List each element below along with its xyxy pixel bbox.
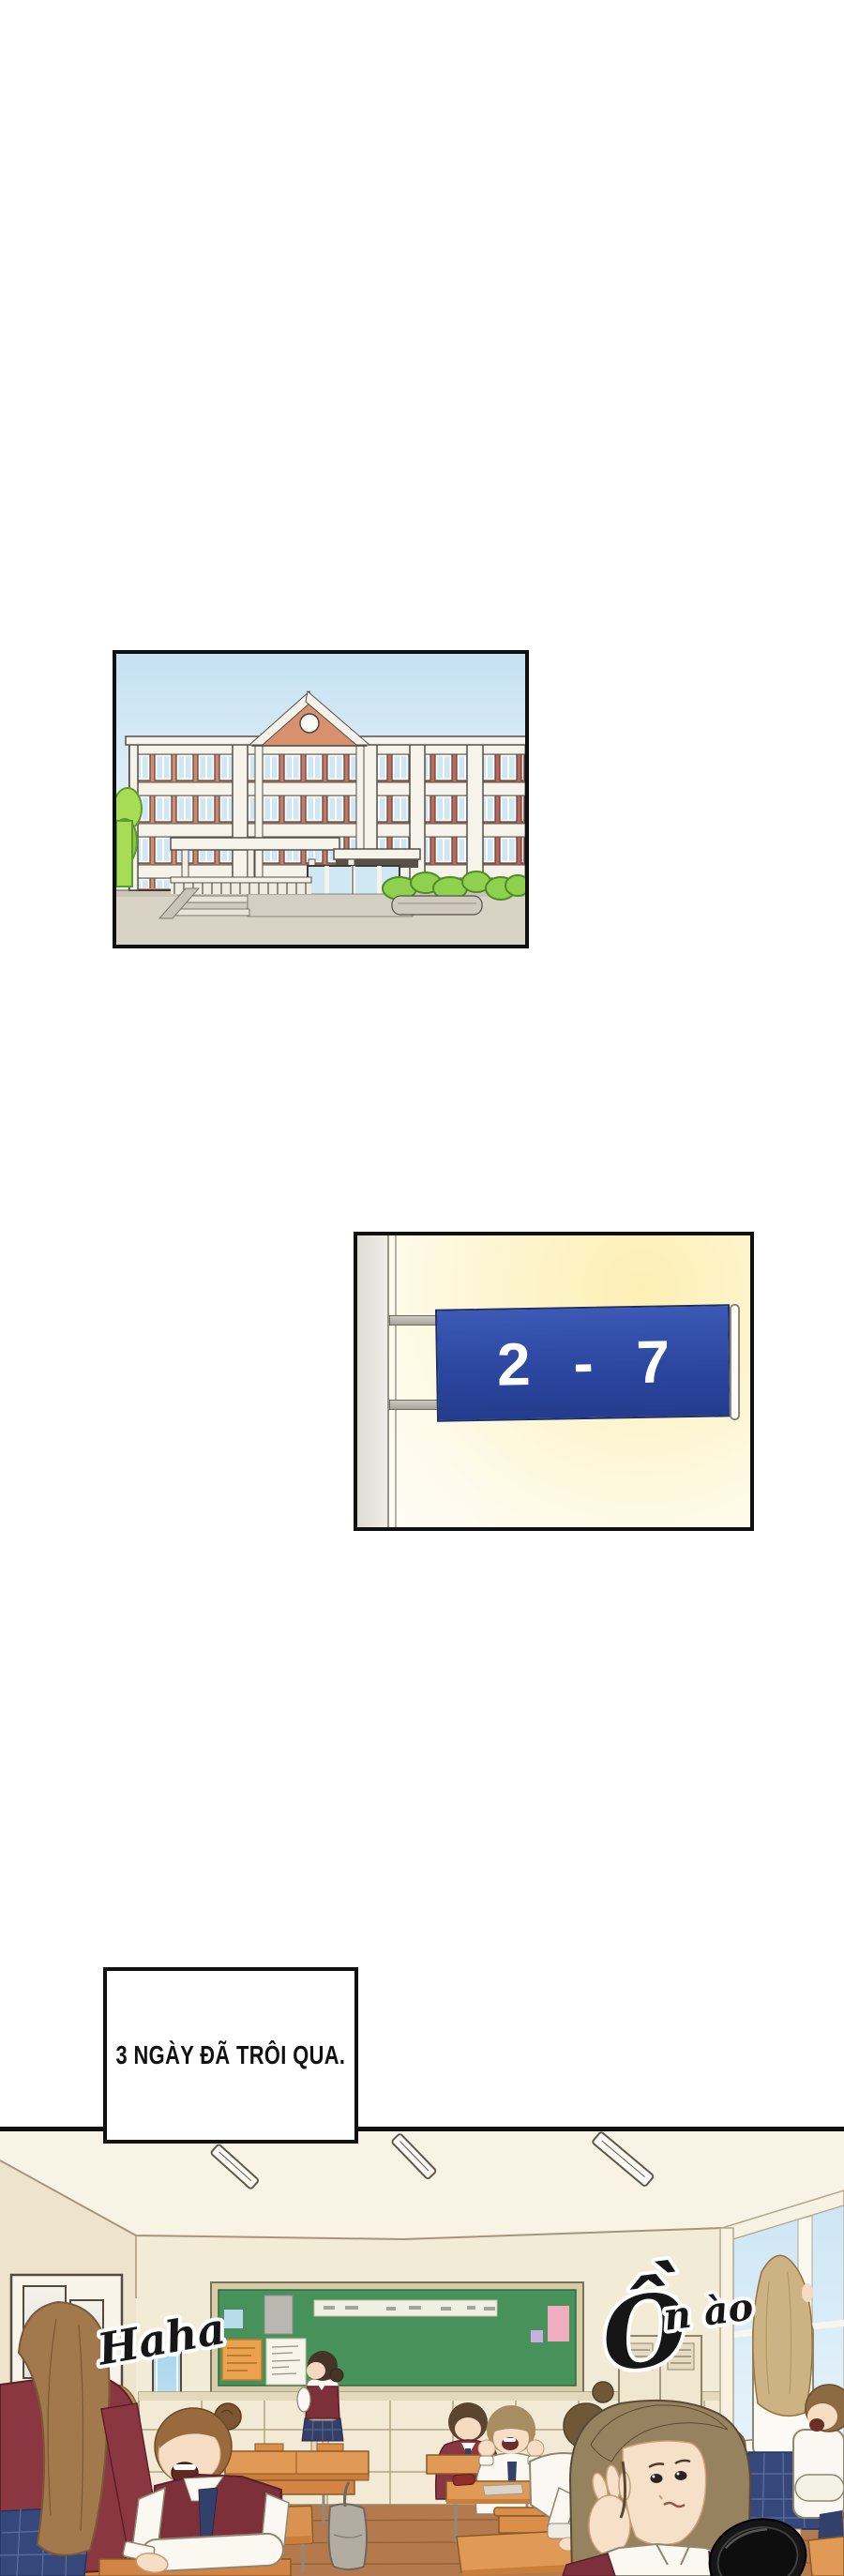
sign-bracket-top [389, 1315, 438, 1326]
panel-school-exterior [113, 650, 529, 948]
narration-caption-box: 3 NGÀY ĐÃ TRÔI QUA. [103, 1967, 358, 2144]
clock-window [300, 714, 319, 733]
school-building-illustration [116, 654, 525, 945]
board-poster-orange [222, 2340, 262, 2380]
panel-room-sign: 2 - 7 [354, 1232, 754, 1531]
classroom-illustration: Haha Ồ n ào [0, 2131, 844, 2576]
panel-classroom-scene: Haha Ồ n ào [0, 2127, 844, 2576]
board-note-lavender [531, 2330, 543, 2342]
hallway-wall [357, 1235, 389, 1527]
chalkboard [211, 2282, 583, 2399]
desk [808, 2537, 844, 2576]
classroom-sign: 2 - 7 [435, 1304, 731, 1421]
red-pencil-case [453, 2474, 475, 2486]
school-entrance [159, 838, 420, 918]
board-paper-white [266, 2339, 306, 2385]
sign-bracket-bottom [389, 1400, 438, 1410]
classroom-sign-text: 2 - 7 [483, 1326, 683, 1400]
ceiling [0, 2131, 844, 2239]
paper-on-desk [483, 2484, 523, 2495]
low-wall [392, 896, 482, 915]
board-note-blue [224, 2310, 243, 2328]
board-paper-pink [548, 2306, 569, 2341]
narration-caption-text: 3 NGÀY ĐÃ TRÔI QUA. [116, 2040, 346, 2070]
board-paper-gray [264, 2296, 293, 2334]
sign-end-cap [730, 1304, 740, 1420]
